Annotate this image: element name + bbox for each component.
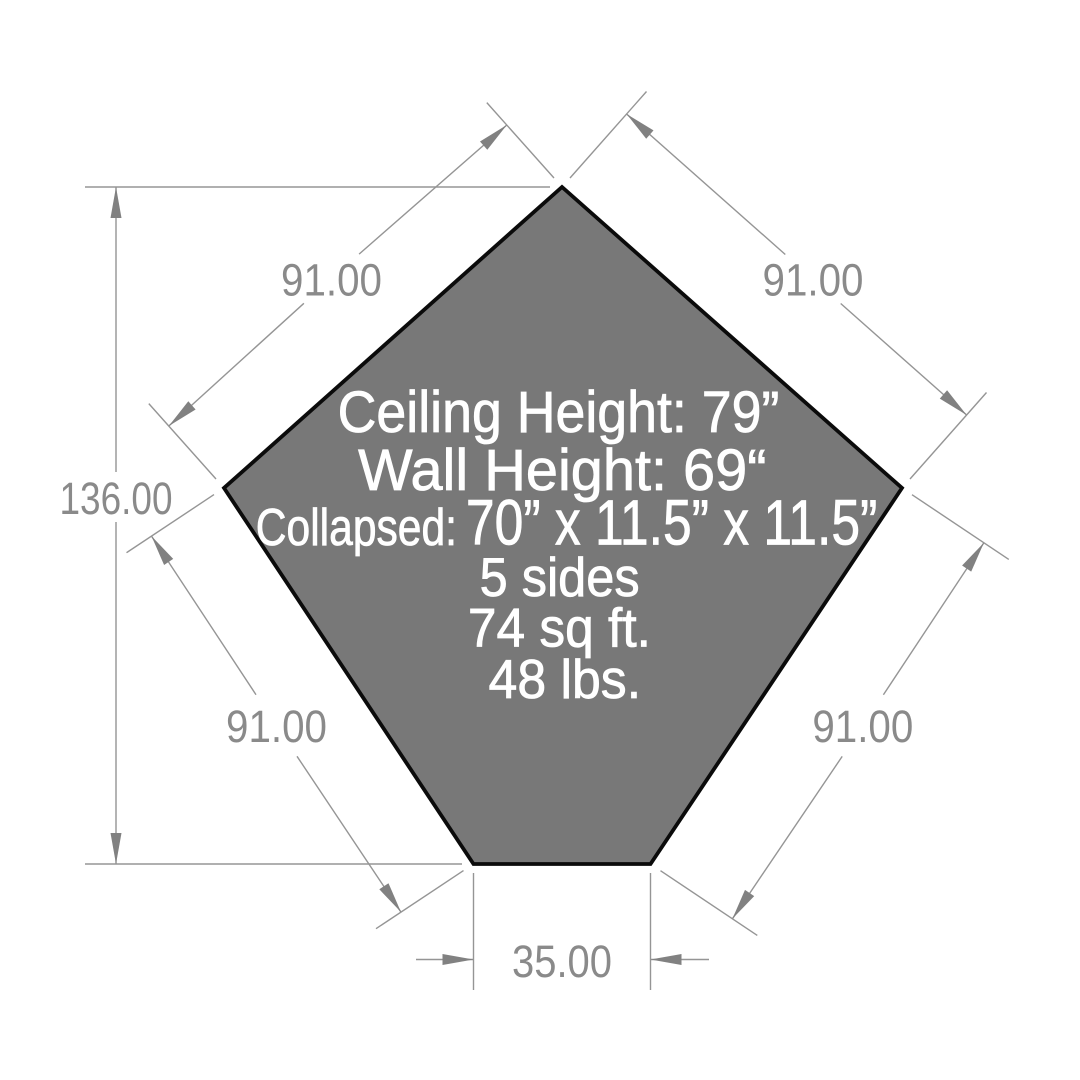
svg-text:91.00: 91.00 bbox=[281, 255, 382, 306]
svg-text:Ceiling Height: 79”: Ceiling Height: 79” bbox=[338, 379, 780, 444]
svg-text:136.00: 136.00 bbox=[60, 472, 173, 524]
svg-text:91.00: 91.00 bbox=[226, 702, 327, 753]
svg-text:91.00: 91.00 bbox=[763, 255, 864, 306]
svg-text:Collapsed:: Collapsed: bbox=[256, 499, 457, 557]
svg-text:35.00: 35.00 bbox=[512, 937, 612, 988]
svg-text:91.00: 91.00 bbox=[812, 702, 913, 753]
svg-text:48 lbs.: 48 lbs. bbox=[489, 650, 642, 711]
